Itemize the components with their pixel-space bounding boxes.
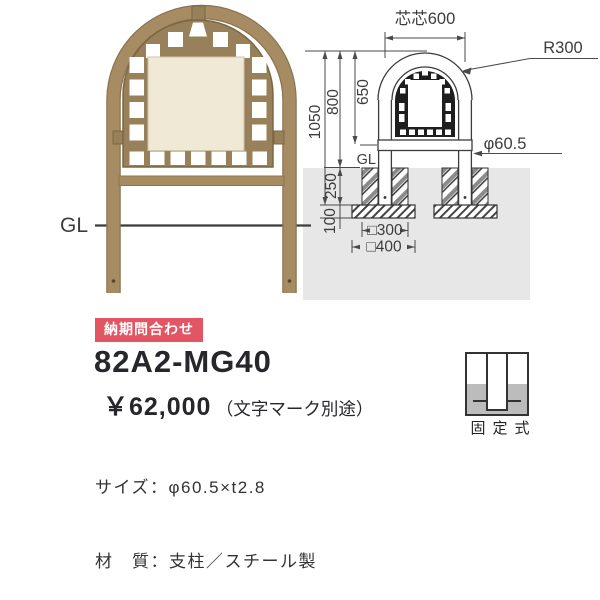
mount-icon-gl-mark-right xyxy=(508,400,521,402)
dim-frame-height: 650 xyxy=(355,79,372,105)
dim-base-width: □400 xyxy=(366,239,402,256)
drain-hole xyxy=(112,279,116,283)
gl-label: GL xyxy=(60,214,88,237)
dim-footing-width: □300 xyxy=(367,222,403,239)
mount-type-label: 固定式 xyxy=(458,417,542,438)
product-code: 82A2-MG40 xyxy=(94,344,272,380)
price-value: ￥62,000 xyxy=(103,393,211,421)
dim-embed-depth: 250 xyxy=(323,173,340,199)
drain-hole xyxy=(288,279,292,283)
dim-base-thickness: 100 xyxy=(322,208,339,234)
spec-material: 材 質：支柱／スチール製 xyxy=(95,550,391,575)
spec-list: サイズ：φ60.5×t2.8 材 質：支柱／スチール製 面格子／アルミ合金鋳物製… xyxy=(95,427,391,600)
product-illustration: GL xyxy=(0,0,300,310)
price-note: （文字マーク別途） xyxy=(216,399,374,419)
sign-panel xyxy=(148,57,244,151)
delivery-badge: 納期問合わせ xyxy=(95,318,203,342)
mount-icon-gl-mark-left xyxy=(473,400,486,402)
dim-center-span: 芯芯600 xyxy=(395,9,456,28)
mount-type-icon xyxy=(465,352,529,416)
price-line: ￥62,000 （文字マーク別途） xyxy=(103,387,373,423)
dim-gl: GL xyxy=(357,152,376,168)
dim-radius: R300 xyxy=(543,39,582,57)
dim-pipe-diameter: φ60.5 xyxy=(484,135,527,153)
catalog-page: GL xyxy=(0,0,600,600)
spec-size: サイズ：φ60.5×t2.8 xyxy=(95,476,391,501)
dimension-drawing: 芯芯600 R300 1050 800 650 GL 250 100 φ60.5… xyxy=(300,0,600,310)
dim-above-ground: 800 xyxy=(325,89,342,115)
crossbar xyxy=(119,176,284,186)
dim-total-height: 1050 xyxy=(307,104,324,139)
mount-icon-post xyxy=(486,352,508,411)
lattice-panel xyxy=(123,20,273,167)
